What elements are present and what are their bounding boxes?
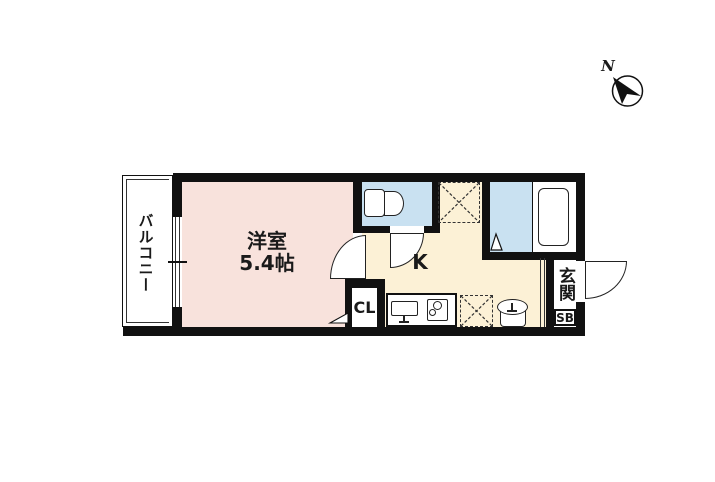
basin-faucet-bar-icon — [507, 310, 517, 312]
closet-wall-top — [345, 279, 385, 288]
wall-bottom — [123, 327, 585, 336]
toilet-bowl-icon — [384, 191, 404, 216]
toilet-wall-bottom-right — [424, 226, 440, 233]
stove-burner-small-icon — [429, 309, 436, 316]
toilet-icon — [364, 189, 385, 217]
north-label: N — [600, 58, 616, 74]
kitchen-sink-icon — [391, 301, 418, 316]
shoe-box: SB — [554, 309, 576, 326]
shower-door-triangle-icon — [488, 230, 508, 254]
balcony-label: バルコニー — [135, 197, 157, 309]
toilet-doorway-gap — [390, 226, 424, 233]
washing-machine-space-x-box — [460, 295, 493, 327]
sink-faucet-bar-icon — [399, 321, 409, 323]
bathtub-icon — [538, 188, 569, 246]
kitchen-label: K — [407, 250, 433, 274]
floor-plan: バルコニー 玄関 SB C — [0, 0, 715, 482]
wall-right-lower — [576, 302, 585, 327]
wall-left-upper — [173, 182, 182, 217]
closet-door-triangle-icon — [327, 309, 351, 327]
closet-wall-right — [377, 288, 385, 327]
toilet-wall-bottom-left — [353, 226, 390, 233]
bedroom-size: 5.4帖 — [239, 252, 294, 274]
refrigerator-space-x-box — [438, 182, 480, 223]
x-box-cross-icon — [439, 183, 479, 222]
window-center-tick — [168, 261, 187, 263]
entrance-label: 玄関 — [555, 261, 576, 307]
entrance-step-line-2 — [544, 258, 545, 327]
wall-right-upper — [576, 182, 585, 261]
closet-label: CL — [352, 295, 377, 319]
bedroom-name: 洋室 — [247, 230, 287, 252]
wall-left-lower — [173, 307, 182, 327]
x-box-cross-icon — [461, 296, 492, 326]
wall-top — [173, 173, 585, 182]
entrance-step-line-1 — [540, 258, 541, 327]
bedroom-label: 洋室 5.4帖 — [217, 229, 317, 275]
entry-door-swing-arc — [585, 261, 627, 299]
